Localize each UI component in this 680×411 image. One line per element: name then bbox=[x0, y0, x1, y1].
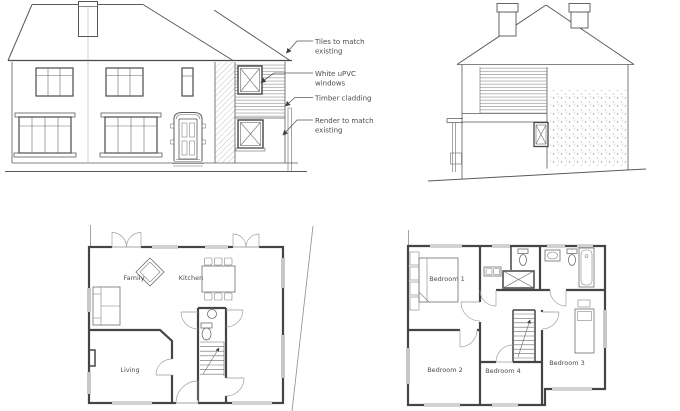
annotation-tiles-line2: existing bbox=[315, 48, 343, 56]
render-stipple bbox=[550, 90, 626, 166]
side-chimney-left bbox=[497, 4, 518, 37]
annotation-upvc-line2: windows bbox=[315, 80, 346, 88]
room-label-bedroom1: Bedroom 1 bbox=[429, 275, 465, 283]
render-strip bbox=[215, 62, 235, 163]
room-label-living: Living bbox=[120, 366, 139, 374]
annotation-render-line2: existing bbox=[315, 127, 343, 135]
extension-lower-window bbox=[236, 120, 265, 151]
room-label-family: Family bbox=[124, 274, 145, 282]
annotation-upvc-line1: White uPVC bbox=[315, 70, 356, 78]
top-window-2 bbox=[205, 245, 228, 250]
annotation-tiles-line1: Tiles to match bbox=[314, 38, 365, 46]
architectural-drawing-sheet: Tiles to match existing White uPVC windo… bbox=[0, 0, 680, 411]
side-window bbox=[534, 123, 548, 147]
side-chimney-right bbox=[569, 4, 590, 29]
annotation-timber-cladding: Timber cladding bbox=[314, 95, 371, 103]
top-window-1 bbox=[152, 245, 178, 250]
drawing-canvas: Tiles to match existing White uPVC windo… bbox=[0, 0, 680, 411]
room-label-bedroom2: Bedroom 2 bbox=[427, 366, 463, 374]
annotation-render-line1: Render to match bbox=[315, 117, 374, 125]
extension-upper-window bbox=[238, 66, 262, 94]
room-label-bedroom3: Bedroom 3 bbox=[549, 359, 585, 367]
room-label-bedroom4: Bedroom 4 bbox=[485, 367, 521, 375]
room-label-kitchen: Kitchen bbox=[179, 274, 203, 282]
paper-background bbox=[0, 0, 680, 411]
